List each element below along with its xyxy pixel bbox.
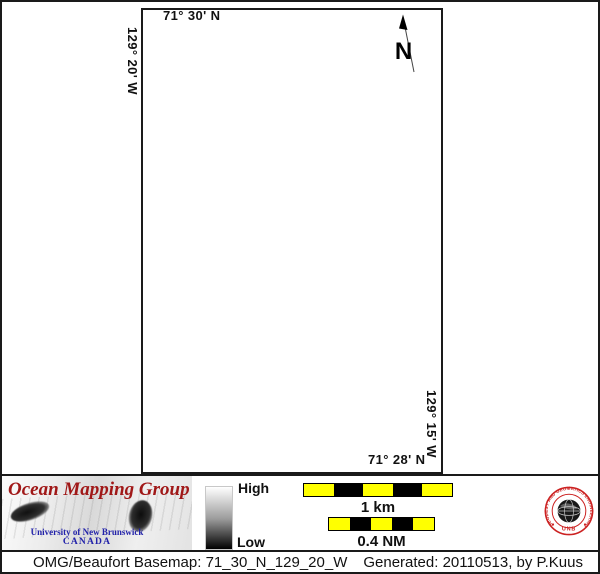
scale-segment <box>392 518 413 530</box>
omg-logo-university: University of New Brunswick <box>17 527 157 537</box>
omg-logo-country: CANADA <box>17 537 157 547</box>
scale-segment <box>371 518 392 530</box>
scale-segment <box>422 484 452 496</box>
coord-label-left-longitude: 129° 20' W <box>125 27 140 95</box>
legend-row: Ocean Mapping Group University of New Br… <box>2 476 598 550</box>
colorbar-low-label: Low <box>237 534 265 550</box>
map-area: 71° 30' N 129° 20' W 129° 15' W 71° 28' … <box>2 2 598 474</box>
caption-basemap-text: OMG/Beaufort Basemap: 71_30_N_129_20_W <box>33 554 347 571</box>
basemap-sheet: 71° 30' N 129° 20' W 129° 15' W 71° 28' … <box>0 0 600 574</box>
caption-generated-text: Generated: 20110513, by P.Kuus <box>363 554 583 571</box>
scale-segment <box>329 518 350 530</box>
scale-segment <box>304 484 334 496</box>
scale-segment <box>413 518 434 530</box>
scalebar-km <box>303 483 453 497</box>
scale-segment <box>363 484 393 496</box>
scale-segment <box>393 484 423 496</box>
coord-label-right-longitude: 129° 15' W <box>424 390 439 458</box>
elevation-colorbar <box>205 486 233 550</box>
north-arrow-icon: N <box>390 12 430 87</box>
scalebar-km-label: 1 km <box>303 499 453 516</box>
coord-label-bottom-latitude: 71° 28' N <box>368 452 425 467</box>
coord-label-top-latitude: 71° 30' N <box>163 8 220 23</box>
seal-unb-text: UNB <box>562 527 576 533</box>
scalebar-nm-label: 0.4 NM <box>328 533 435 550</box>
omg-logo-title: Ocean Mapping Group <box>8 479 190 501</box>
unb-seal-icon: GEODESY AND GEOMATICS ENGINEERING UNB <box>543 485 595 537</box>
caption-bar: OMG/Beaufort Basemap: 71_30_N_129_20_W G… <box>2 550 598 572</box>
legend-panel: Ocean Mapping Group University of New Br… <box>2 474 598 572</box>
scale-segment <box>334 484 364 496</box>
colorbar-high-label: High <box>238 480 269 496</box>
scale-segment <box>350 518 371 530</box>
omg-logo: Ocean Mapping Group University of New Br… <box>2 476 192 550</box>
north-arrow-letter: N <box>395 38 412 65</box>
scalebar-nm <box>328 517 435 531</box>
